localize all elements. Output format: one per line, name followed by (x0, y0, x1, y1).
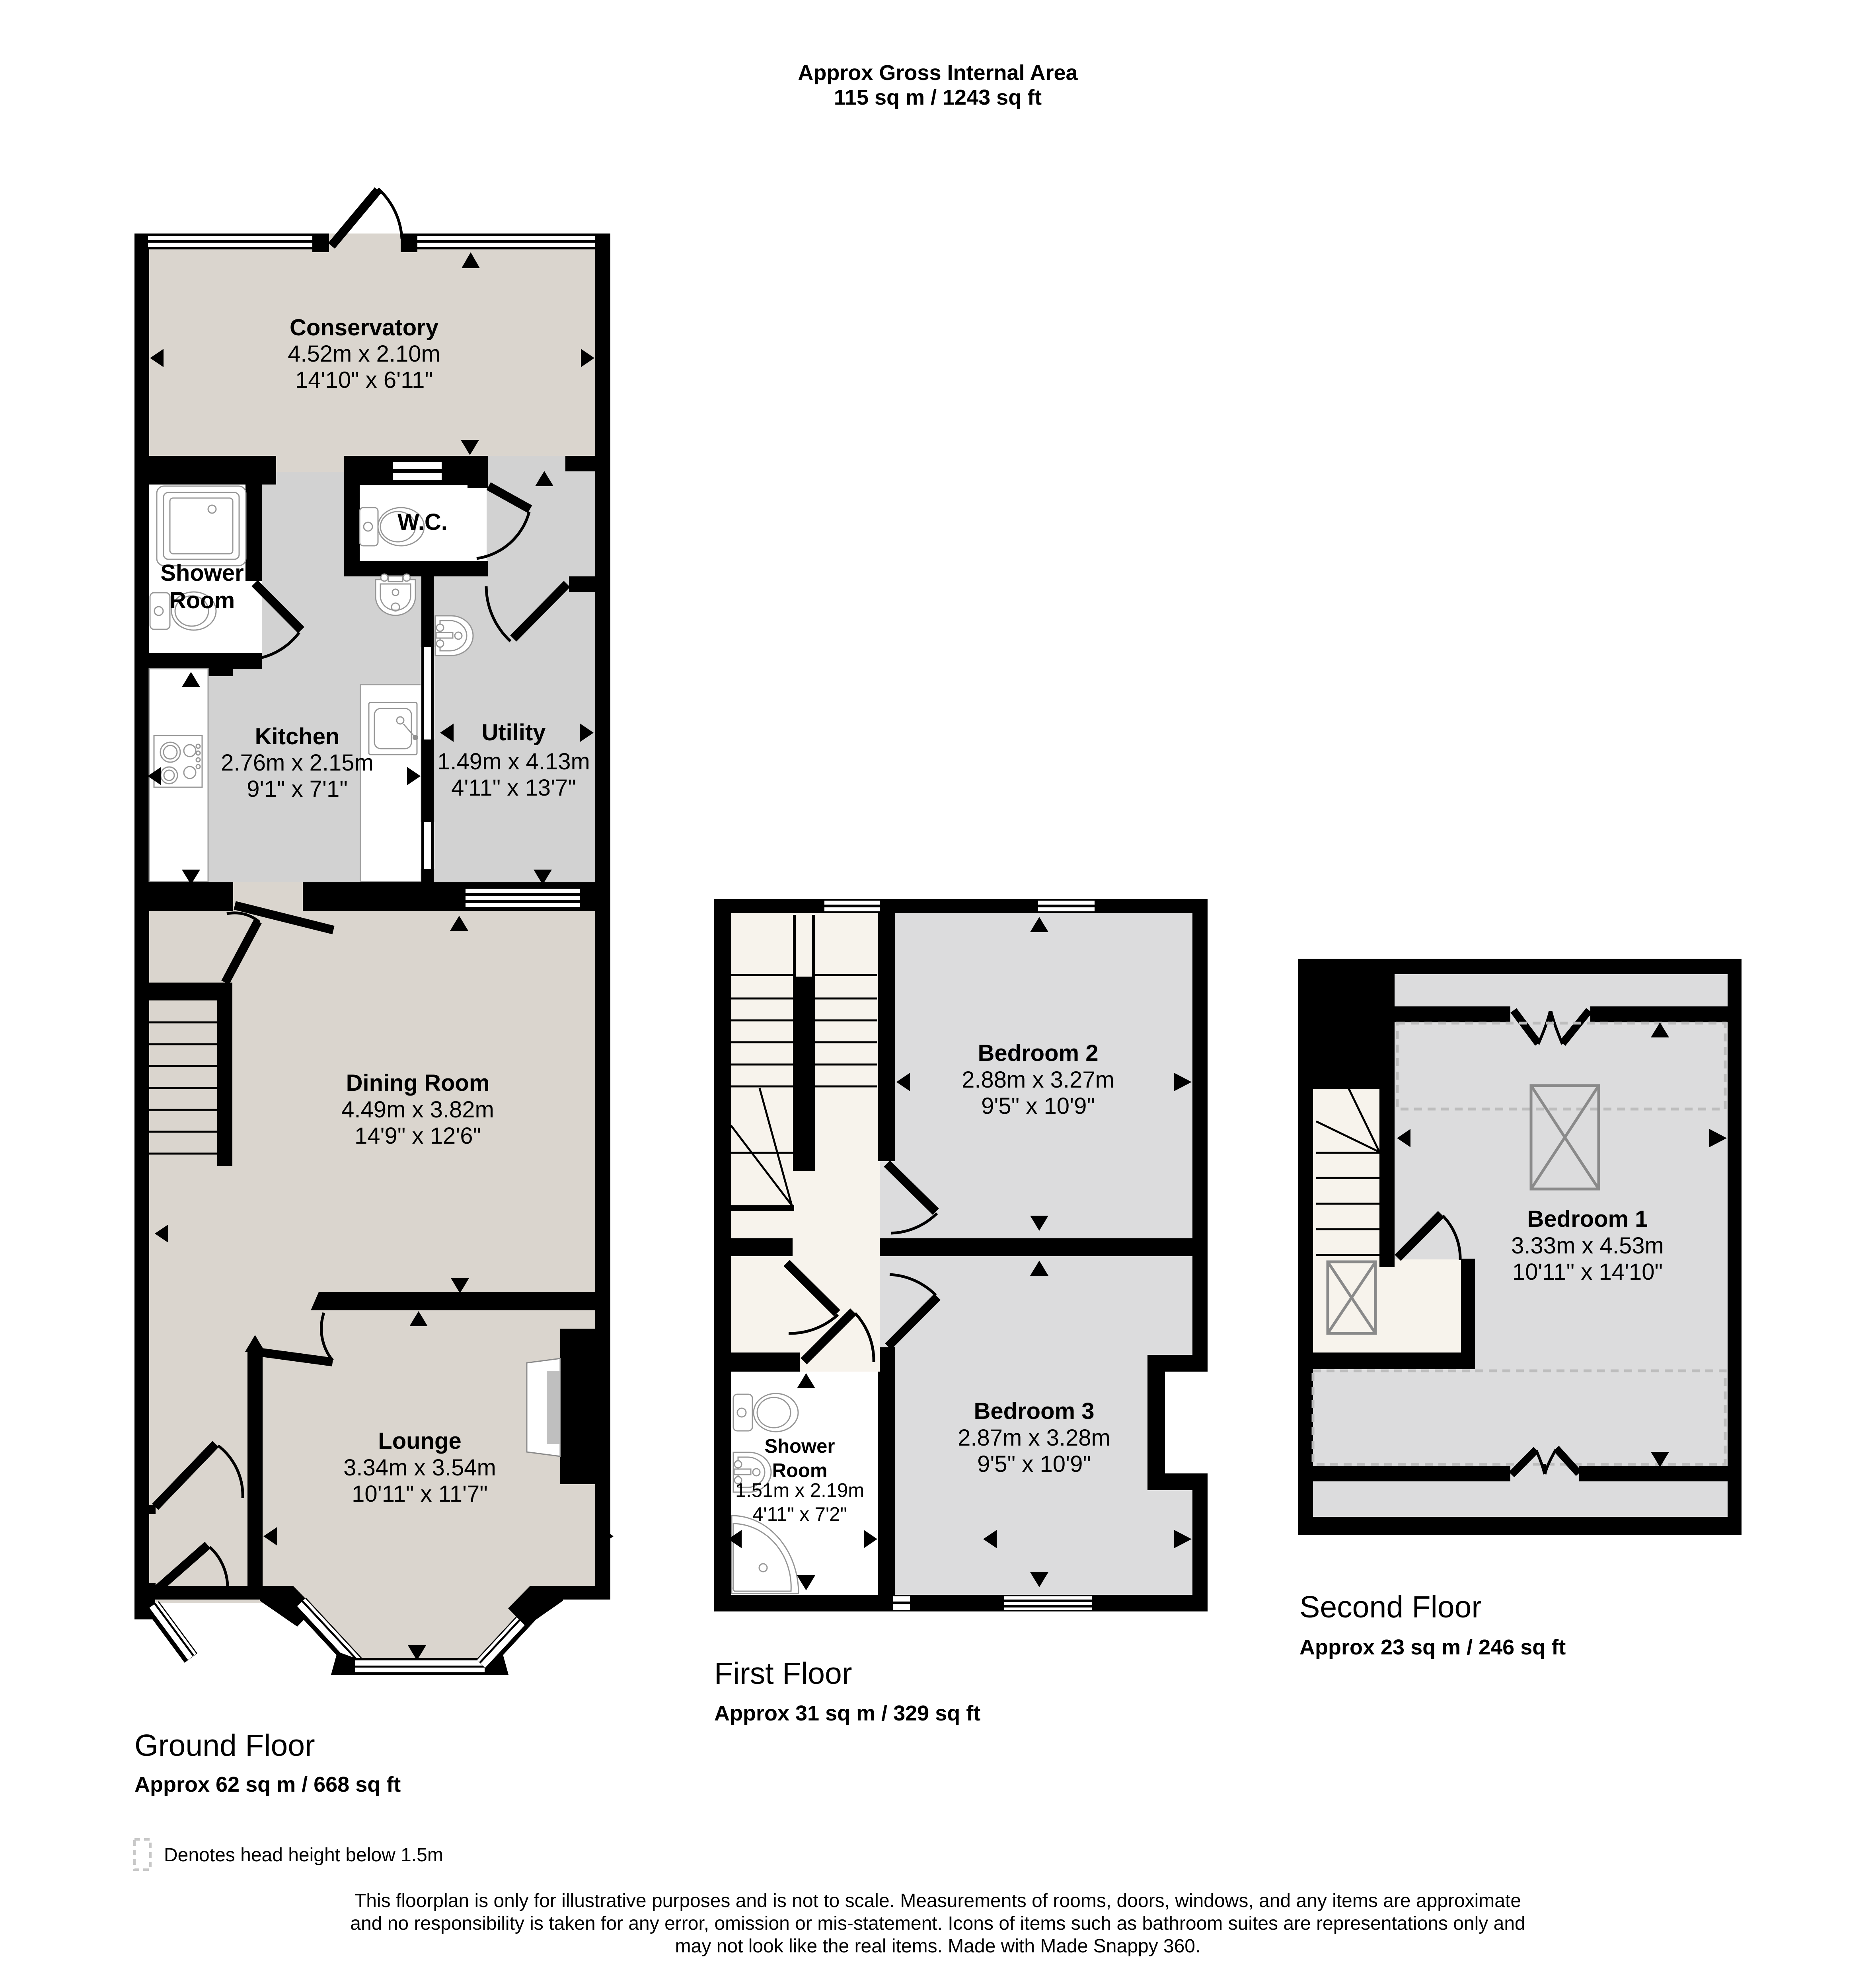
svg-text:and no responsibility is taken: and no responsibility is taken for any e… (350, 1913, 1525, 1934)
svg-text:4'11" x 13'7": 4'11" x 13'7" (451, 775, 576, 801)
svg-text:Approx 62 sq m / 668 sq ft: Approx 62 sq m / 668 sq ft (134, 1773, 401, 1796)
svg-text:Bedroom 1: Bedroom 1 (1527, 1206, 1648, 1232)
svg-text:2.76m x 2.15m: 2.76m x 2.15m (221, 750, 374, 776)
svg-text:115 sq m / 1243 sq ft: 115 sq m / 1243 sq ft (834, 86, 1042, 109)
svg-text:1.49m x 4.13m: 1.49m x 4.13m (437, 749, 590, 775)
svg-text:may not look like the real ite: may not look like the real items. Made w… (675, 1936, 1201, 1957)
svg-text:9'1" x 7'1": 9'1" x 7'1" (247, 776, 348, 802)
svg-text:Room: Room (772, 1460, 828, 1481)
svg-text:Shower: Shower (765, 1436, 835, 1457)
svg-text:Lounge: Lounge (378, 1428, 461, 1454)
svg-text:Bedroom 2: Bedroom 2 (978, 1040, 1099, 1066)
svg-text:10'11" x 11'7": 10'11" x 11'7" (352, 1481, 488, 1507)
svg-text:Utility: Utility (481, 720, 545, 745)
svg-text:4.49m x 3.82m: 4.49m x 3.82m (341, 1097, 494, 1123)
svg-text:9'5" x 10'9": 9'5" x 10'9" (977, 1451, 1091, 1477)
svg-text:9'5" x 10'9": 9'5" x 10'9" (981, 1093, 1095, 1119)
svg-text:Shower: Shower (160, 560, 244, 586)
svg-text:This floorplan is only for ill: This floorplan is only for illustrative … (355, 1890, 1521, 1911)
svg-text:14'9" x 12'6": 14'9" x 12'6" (355, 1123, 481, 1149)
svg-text:Room: Room (169, 588, 235, 613)
svg-text:2.88m x 3.27m: 2.88m x 3.27m (962, 1067, 1114, 1093)
svg-text:Kitchen: Kitchen (255, 724, 340, 749)
svg-text:Denotes head height below 1.5m: Denotes head height below 1.5m (164, 1845, 443, 1866)
svg-text:10'11" x 14'10": 10'11" x 14'10" (1512, 1259, 1663, 1285)
svg-text:Bedroom 3: Bedroom 3 (974, 1398, 1095, 1424)
svg-text:Ground Floor: Ground Floor (134, 1728, 315, 1763)
svg-text:3.33m x 4.53m: 3.33m x 4.53m (1511, 1233, 1664, 1259)
svg-text:2.87m x 3.28m: 2.87m x 3.28m (958, 1425, 1110, 1451)
svg-text:W.C.: W.C. (397, 509, 448, 535)
svg-text:4'11" x 7'2": 4'11" x 7'2" (752, 1504, 847, 1525)
svg-text:Conservatory: Conservatory (290, 315, 438, 341)
svg-text:Dining Room: Dining Room (346, 1070, 490, 1096)
svg-text:4.52m x 2.10m: 4.52m x 2.10m (288, 341, 440, 367)
svg-text:First Floor: First Floor (714, 1656, 852, 1691)
svg-text:Approx Gross Internal Area: Approx Gross Internal Area (798, 61, 1078, 85)
svg-text:1.51m x 2.19m: 1.51m x 2.19m (735, 1480, 864, 1501)
svg-text:Second Floor: Second Floor (1299, 1590, 1482, 1624)
svg-text:Approx 23 sq m / 246 sq ft: Approx 23 sq m / 246 sq ft (1299, 1635, 1566, 1659)
svg-text:3.34m x 3.54m: 3.34m x 3.54m (343, 1455, 496, 1481)
svg-text:14'10" x 6'11": 14'10" x 6'11" (295, 367, 433, 393)
svg-text:Approx 31 sq m / 329 sq ft: Approx 31 sq m / 329 sq ft (714, 1701, 980, 1725)
